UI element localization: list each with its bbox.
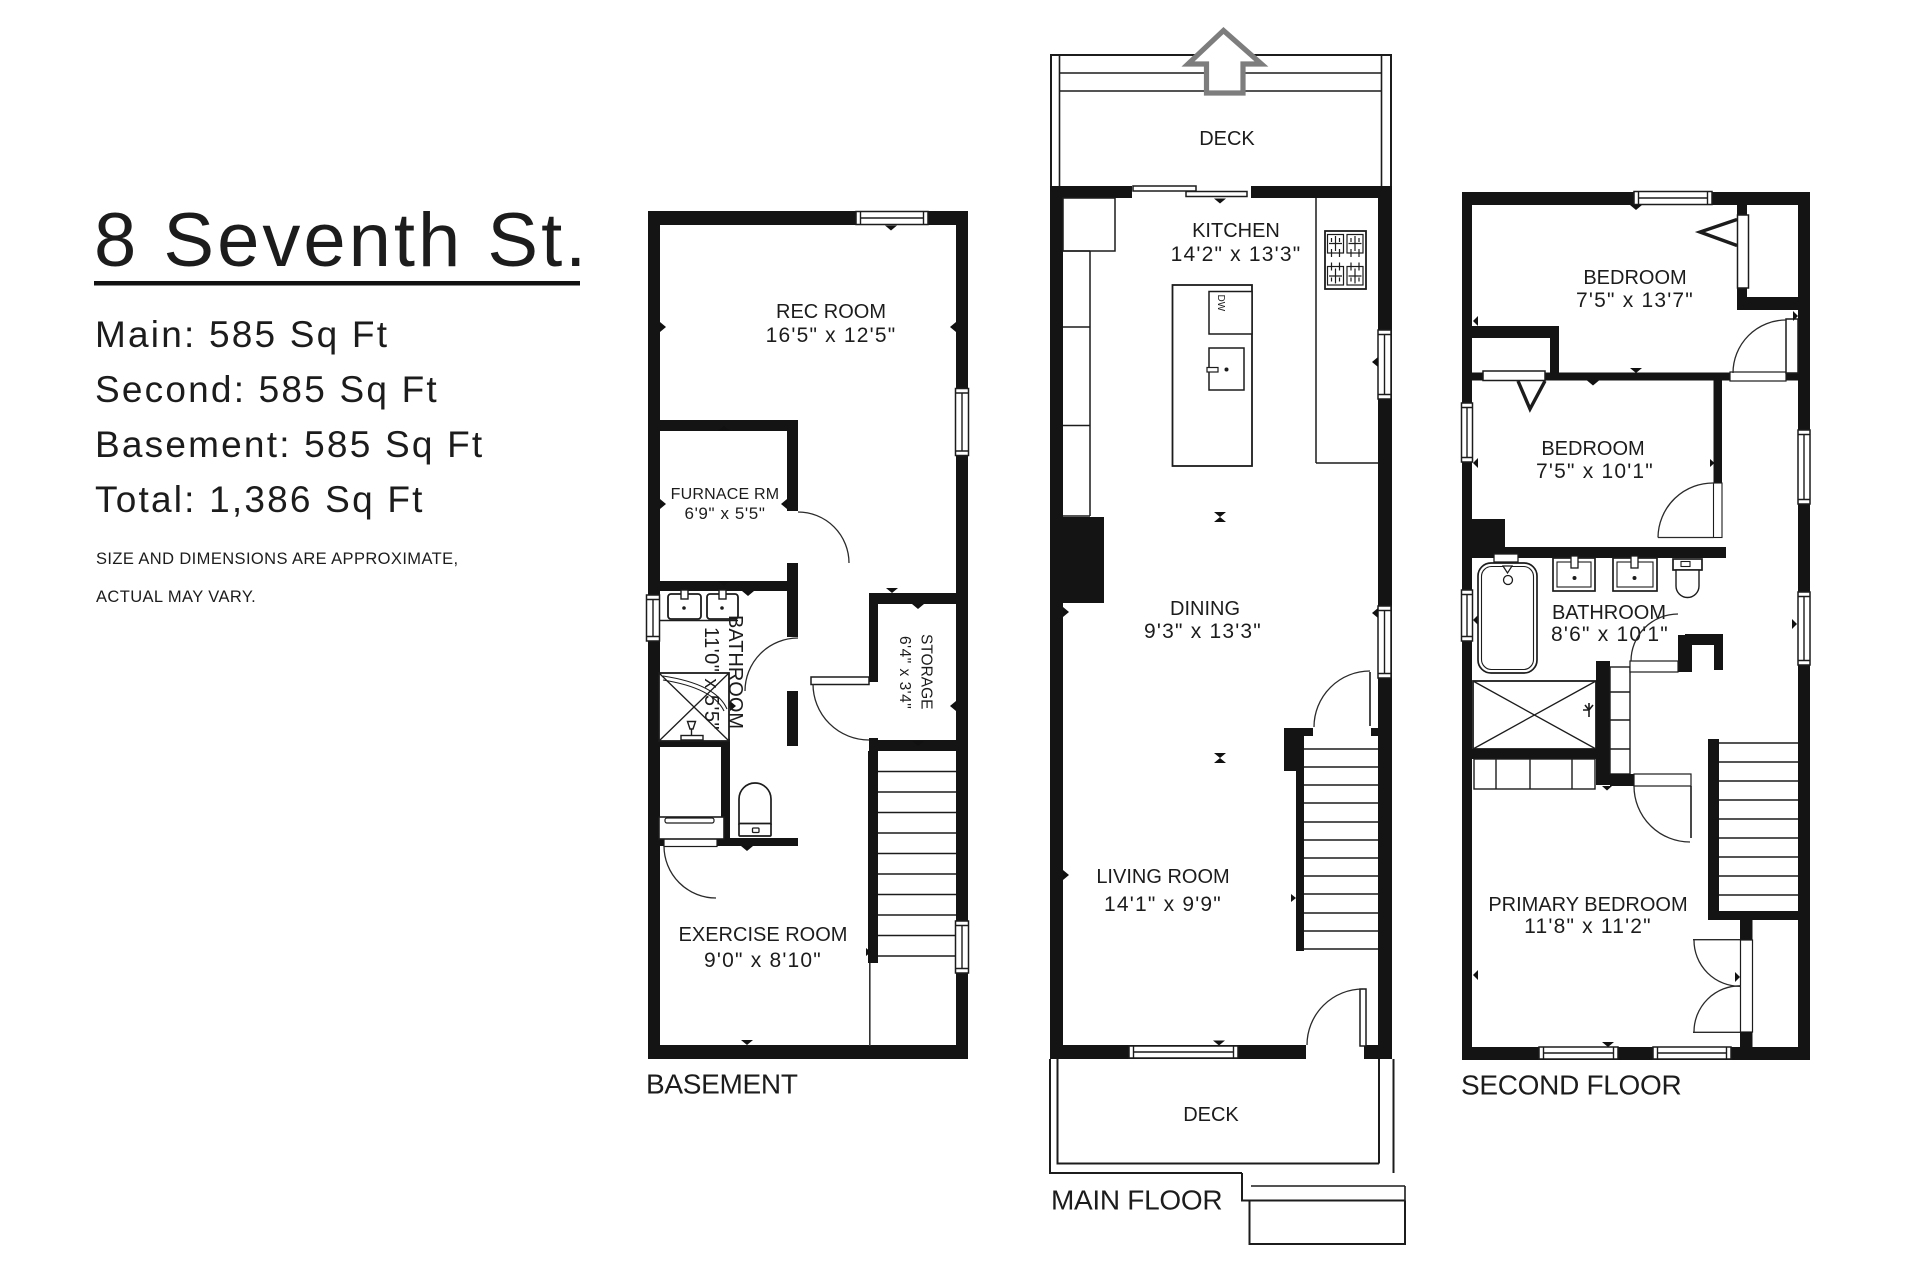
svg-text:8 Seventh St.: 8 Seventh St. xyxy=(94,198,589,283)
svg-text:REC ROOM: REC ROOM xyxy=(776,301,886,323)
svg-text:STORAGE: STORAGE xyxy=(918,634,935,710)
svg-text:9'3" x 13'3": 9'3" x 13'3" xyxy=(1144,620,1262,643)
svg-text:7'5" x 10'1": 7'5" x 10'1" xyxy=(1536,460,1654,483)
svg-text:DW: DW xyxy=(1215,295,1226,312)
svg-text:KITCHEN: KITCHEN xyxy=(1192,220,1280,242)
svg-text:BEDROOM: BEDROOM xyxy=(1541,438,1644,460)
svg-text:BATHROOM: BATHROOM xyxy=(1552,602,1666,624)
svg-text:Main: 585 Sq Ft: Main: 585 Sq Ft xyxy=(95,314,389,355)
svg-text:14'1" x 9'9": 14'1" x 9'9" xyxy=(1104,893,1222,916)
svg-text:LIVING ROOM: LIVING ROOM xyxy=(1096,866,1229,888)
svg-text:EXERCISE ROOM: EXERCISE ROOM xyxy=(679,924,848,946)
svg-text:16'5" x 12'5": 16'5" x 12'5" xyxy=(766,324,897,347)
svg-text:DINING: DINING xyxy=(1170,598,1240,620)
svg-text:FURNACE RM: FURNACE RM xyxy=(671,486,780,503)
svg-text:MAIN FLOOR: MAIN FLOOR xyxy=(1051,1185,1222,1216)
svg-text:BEDROOM: BEDROOM xyxy=(1583,267,1686,289)
svg-text:Second: 585 Sq Ft: Second: 585 Sq Ft xyxy=(95,369,439,410)
svg-text:11'8" x 11'2": 11'8" x 11'2" xyxy=(1524,915,1652,938)
svg-text:9'0" x 8'10": 9'0" x 8'10" xyxy=(704,949,822,972)
svg-text:ACTUAL MAY VARY.: ACTUAL MAY VARY. xyxy=(96,588,256,606)
svg-text:DECK: DECK xyxy=(1199,128,1255,150)
svg-text:7'5" x 13'7": 7'5" x 13'7" xyxy=(1576,289,1694,312)
svg-text:PRIMARY BEDROOM: PRIMARY BEDROOM xyxy=(1488,894,1687,916)
svg-text:DECK: DECK xyxy=(1183,1104,1239,1126)
svg-text:BATHROOM: BATHROOM xyxy=(724,615,746,729)
svg-text:SECOND FLOOR: SECOND FLOOR xyxy=(1461,1070,1681,1101)
svg-text:SIZE AND DIMENSIONS ARE APPROX: SIZE AND DIMENSIONS ARE APPROXIMATE, xyxy=(96,550,459,568)
svg-text:BASEMENT: BASEMENT xyxy=(646,1069,798,1100)
svg-text:14'2" x 13'3": 14'2" x 13'3" xyxy=(1171,243,1302,266)
svg-text:6'9" x 5'5": 6'9" x 5'5" xyxy=(685,504,766,523)
svg-text:Total: 1,386 Sq Ft: Total: 1,386 Sq Ft xyxy=(95,479,425,520)
svg-text:8'6" x 10'1": 8'6" x 10'1" xyxy=(1551,623,1669,646)
svg-text:6'4" x 3'4": 6'4" x 3'4" xyxy=(896,636,913,709)
svg-text:11'0" x 5'5": 11'0" x 5'5" xyxy=(700,627,722,730)
svg-text:Basement: 585 Sq Ft: Basement: 585 Sq Ft xyxy=(95,424,484,465)
